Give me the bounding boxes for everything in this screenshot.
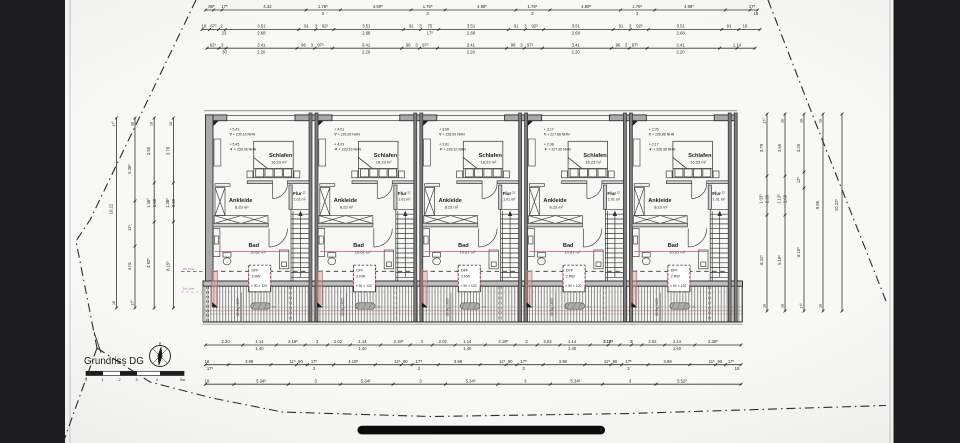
svg-text:+ 4.03: + 4.03 bbox=[334, 143, 344, 147]
svg-text:90: 90 bbox=[508, 359, 513, 364]
svg-text:3.41: 3.41 bbox=[362, 42, 371, 47]
svg-text:90: 90 bbox=[717, 359, 722, 364]
svg-text:91: 91 bbox=[514, 24, 519, 29]
svg-text:96: 96 bbox=[406, 42, 411, 47]
svg-text:3: 3 bbox=[136, 378, 138, 382]
svg-text:2.02: 2.02 bbox=[648, 339, 657, 344]
svg-text:90: 90 bbox=[298, 359, 303, 364]
svg-text:+ 2.98: + 2.98 bbox=[544, 143, 554, 147]
svg-text:3.78: 3.78 bbox=[165, 146, 170, 155]
svg-text:1: 1 bbox=[102, 378, 104, 382]
svg-text:18: 18 bbox=[112, 301, 116, 305]
svg-text:18: 18 bbox=[130, 122, 134, 126]
svg-text:4: 4 bbox=[156, 378, 158, 382]
svg-text:+ 5.43: + 5.43 bbox=[230, 128, 240, 132]
svg-text:18: 18 bbox=[818, 119, 822, 123]
svg-text:2m Linie: 2m Linie bbox=[183, 267, 195, 271]
svg-text:3.51: 3.51 bbox=[467, 24, 476, 29]
svg-text:18: 18 bbox=[150, 122, 154, 126]
svg-text:2.20: 2.20 bbox=[572, 49, 581, 54]
svg-text:3.98: 3.98 bbox=[454, 359, 463, 364]
svg-text:+ 5.45: + 5.45 bbox=[230, 143, 240, 147]
svg-text:91: 91 bbox=[409, 24, 414, 29]
svg-text:18: 18 bbox=[754, 11, 759, 16]
svg-text:2.20: 2.20 bbox=[222, 339, 231, 344]
svg-text:3.99: 3.99 bbox=[245, 359, 254, 364]
svg-text:Grundriss DG: Grundriss DG bbox=[84, 356, 144, 367]
svg-text:2.02: 2.02 bbox=[544, 339, 553, 344]
svg-text:1.14: 1.14 bbox=[358, 339, 367, 344]
svg-text:18: 18 bbox=[735, 366, 740, 371]
svg-text:96: 96 bbox=[301, 42, 306, 47]
svg-text:1.40: 1.40 bbox=[673, 346, 682, 351]
svg-text:▼ + 230.06 NHN: ▼ + 230.06 NHN bbox=[230, 148, 257, 152]
svg-text:1.40: 1.40 bbox=[358, 346, 367, 351]
svg-text:1.14: 1.14 bbox=[568, 339, 577, 344]
svg-text:9.86: 9.86 bbox=[815, 200, 820, 209]
svg-text:2.68: 2.68 bbox=[572, 31, 581, 36]
svg-text:1.40: 1.40 bbox=[463, 346, 472, 351]
svg-text:2.20: 2.20 bbox=[467, 49, 476, 54]
svg-text:3.51: 3.51 bbox=[362, 24, 371, 29]
svg-text:18: 18 bbox=[743, 24, 748, 29]
svg-text:2.68: 2.68 bbox=[677, 31, 686, 36]
svg-text:4.32: 4.32 bbox=[263, 4, 272, 9]
svg-text:96: 96 bbox=[511, 42, 516, 47]
svg-text:18: 18 bbox=[780, 304, 784, 308]
svg-text:+ 3.17: + 3.17 bbox=[544, 128, 554, 132]
svg-text:10.22: 10.22 bbox=[108, 203, 113, 214]
svg-text:2.20: 2.20 bbox=[171, 198, 176, 207]
svg-text:1.14: 1.14 bbox=[673, 339, 682, 344]
svg-text:2.68: 2.68 bbox=[783, 194, 788, 203]
svg-text:2.68: 2.68 bbox=[152, 198, 157, 207]
svg-text:3.79: 3.79 bbox=[759, 143, 764, 152]
svg-text:3.41: 3.41 bbox=[257, 42, 266, 47]
svg-text:96: 96 bbox=[616, 42, 621, 47]
svg-text:91: 91 bbox=[727, 24, 732, 29]
svg-text:2.68: 2.68 bbox=[467, 31, 476, 36]
svg-text:1.40: 1.40 bbox=[568, 346, 577, 351]
svg-text:18: 18 bbox=[780, 119, 784, 123]
svg-text:18: 18 bbox=[169, 122, 173, 126]
svg-text:2.20: 2.20 bbox=[676, 49, 685, 54]
svg-text:1.14: 1.14 bbox=[733, 42, 742, 47]
svg-text:4.01: 4.01 bbox=[127, 261, 132, 270]
svg-text:▼ + 228.32 NHN: ▼ + 228.32 NHN bbox=[439, 148, 466, 152]
svg-text:2.20: 2.20 bbox=[362, 49, 371, 54]
svg-text:3.51: 3.51 bbox=[677, 24, 686, 29]
svg-text:3.51: 3.51 bbox=[257, 24, 266, 29]
svg-text:18: 18 bbox=[762, 304, 766, 308]
svg-text:18: 18 bbox=[818, 304, 822, 308]
svg-text:3.55: 3.55 bbox=[777, 143, 782, 152]
svg-text:+ 2.35: + 2.35 bbox=[649, 128, 659, 132]
svg-text:18: 18 bbox=[799, 119, 803, 123]
svg-text:3.41: 3.41 bbox=[467, 42, 476, 47]
svg-text:30: 30 bbox=[222, 49, 227, 54]
svg-text:3.41: 3.41 bbox=[676, 42, 685, 47]
svg-text:+ 3.81: + 3.81 bbox=[439, 143, 449, 147]
svg-text:▼ + 227.36 NHN: ▼ + 227.36 NHN bbox=[544, 148, 571, 152]
svg-text:+ 3.98: + 3.98 bbox=[439, 128, 449, 132]
svg-text:91: 91 bbox=[619, 24, 624, 29]
svg-text:1.14: 1.14 bbox=[463, 339, 472, 344]
svg-text:3.55: 3.55 bbox=[146, 146, 151, 155]
svg-text:3.98: 3.98 bbox=[559, 359, 568, 364]
svg-text:∇ + 230.16 NHN: ∇ + 230.16 NHN bbox=[229, 133, 256, 137]
svg-text:1m Linie: 1m Linie bbox=[183, 286, 195, 290]
svg-text:∇ + 228.90 NHN: ∇ + 228.90 NHN bbox=[438, 133, 465, 137]
svg-text:∇ + 229.20 NHN: ∇ + 229.20 NHN bbox=[333, 133, 360, 137]
svg-text:2.20: 2.20 bbox=[765, 194, 770, 203]
svg-text:∇ + 226.88 NHN: ∇ + 226.88 NHN bbox=[648, 133, 675, 137]
svg-text:2.20: 2.20 bbox=[257, 49, 266, 54]
svg-text:18: 18 bbox=[205, 359, 210, 364]
svg-text:∇ + 227.88 NHN: ∇ + 227.88 NHN bbox=[543, 133, 570, 137]
svg-text:91: 91 bbox=[304, 24, 309, 29]
svg-text:3.51: 3.51 bbox=[572, 24, 581, 29]
svg-text:▼ + 229.16 NHN: ▼ + 229.16 NHN bbox=[334, 148, 361, 152]
svg-text:90: 90 bbox=[403, 359, 408, 364]
svg-text:5m: 5m bbox=[180, 378, 185, 382]
svg-text:18: 18 bbox=[205, 378, 210, 383]
svg-text:1.40: 1.40 bbox=[255, 346, 264, 351]
svg-text:▼ + 226.36 NHN: ▼ + 226.36 NHN bbox=[649, 148, 676, 152]
svg-text:75: 75 bbox=[427, 24, 432, 29]
svg-text:3.41: 3.41 bbox=[572, 42, 581, 47]
svg-text:+ 4.01: + 4.01 bbox=[334, 128, 344, 132]
svg-text:2.68: 2.68 bbox=[362, 31, 371, 36]
svg-text:3.26: 3.26 bbox=[796, 143, 801, 152]
svg-text:2: 2 bbox=[119, 378, 121, 382]
svg-text:2.02: 2.02 bbox=[334, 339, 343, 344]
svg-text:2.68: 2.68 bbox=[257, 31, 266, 36]
svg-text:90: 90 bbox=[613, 359, 618, 364]
svg-text:0: 0 bbox=[85, 378, 87, 382]
svg-text:1.14: 1.14 bbox=[255, 339, 264, 344]
svg-text:2.02: 2.02 bbox=[439, 339, 448, 344]
svg-text:+ 2.17: + 2.17 bbox=[649, 143, 659, 147]
svg-text:23: 23 bbox=[222, 31, 227, 36]
svg-text:18: 18 bbox=[202, 24, 207, 29]
svg-text:3.98: 3.98 bbox=[664, 359, 673, 364]
